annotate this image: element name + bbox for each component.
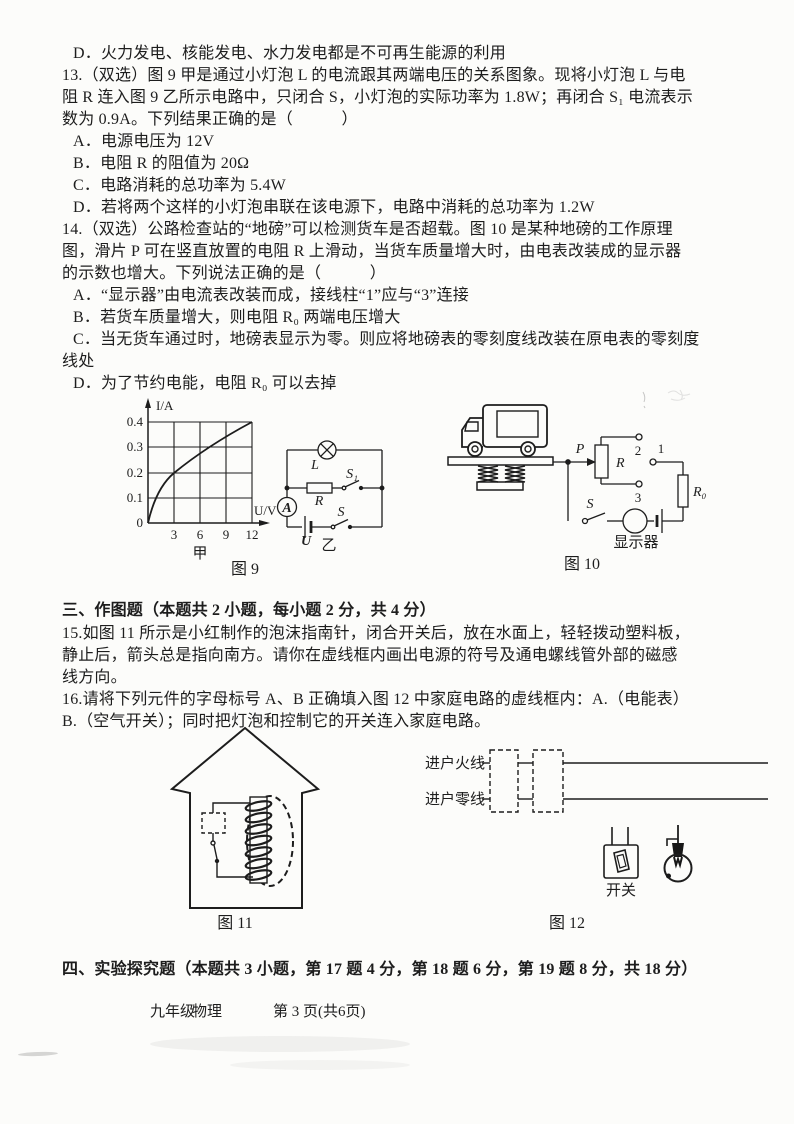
scan-smudge bbox=[150, 1036, 410, 1052]
q14-stem-1: 14.（双选）公路检查站的“地磅”可以检测货车是否超载。图 10 是某种地磅的工… bbox=[62, 220, 673, 240]
wall-switch-icon bbox=[604, 827, 638, 878]
figure-10-caption: 图 10 bbox=[564, 556, 600, 573]
switch-blade-icon bbox=[214, 845, 217, 859]
y-tick: 0.2 bbox=[127, 465, 143, 480]
switch1-label: S₁ bbox=[346, 467, 358, 482]
q13-stem-2: 阻 R 连入图 9 乙所示电路中，只闭合 S，小灯泡的实际功率为 1.8W；再闭… bbox=[62, 88, 693, 108]
figure-10: P R 2 1 3 R₀ S 显示器 图 10 bbox=[420, 385, 780, 585]
q14-stem-3: 的示数也增大。下列说法正确的是（ ） bbox=[62, 264, 386, 284]
figure-12-caption: 图 12 bbox=[549, 915, 585, 932]
resistor-label: R bbox=[615, 456, 625, 471]
switch-s-icon bbox=[334, 520, 348, 527]
terminal-2 bbox=[636, 434, 642, 440]
footer-grade: 九年级 bbox=[150, 1000, 195, 1021]
switch-label: S bbox=[338, 505, 345, 520]
switch-pivot bbox=[211, 841, 215, 845]
q15-stem-2: 静止后，箭头总是指向南方。请你在虚线框内画出电源的符号及通电螺线管外部的磁感 bbox=[62, 646, 678, 666]
wall-switch-label: 开关 bbox=[606, 882, 636, 899]
slide-resistor-icon bbox=[595, 445, 608, 478]
dashed-box-b bbox=[533, 750, 563, 812]
q13-stem-1: 13.（双选）图 9 甲是通过小灯泡 L 的电流跟其两端电压的关系图象。现将小灯… bbox=[62, 66, 686, 86]
footer-subject: 物理 bbox=[192, 1000, 222, 1021]
battery-icon bbox=[657, 509, 662, 533]
x-tick: 12 bbox=[246, 527, 259, 542]
q14-option-b: B．若货车质量增大，则电阻 R₀ 两端电压增大 bbox=[73, 308, 401, 328]
y-axis-arrow-icon bbox=[145, 398, 151, 408]
section-4-title: 四、实验探究题（本题共 3 小题，第 17 题 4 分，第 18 题 6 分，第… bbox=[62, 960, 697, 980]
x-tick: 3 bbox=[171, 527, 178, 542]
x-tick: 9 bbox=[223, 527, 230, 542]
switch-pivot bbox=[583, 519, 588, 524]
r0-resistor-icon bbox=[678, 475, 688, 507]
q14-stem-2: 图，滑片 P 可在竖直放置的电阻 R 上滑动，当货车质量增大时，由电表改装成的显… bbox=[62, 242, 681, 262]
q13-option-a: A．电源电压为 12V bbox=[73, 132, 214, 152]
weighbridge-circuit bbox=[553, 434, 688, 533]
ammeter-label: A bbox=[281, 501, 291, 516]
terminal-1 bbox=[650, 459, 656, 465]
scan-smudge bbox=[18, 1051, 58, 1056]
dashed-box-a bbox=[490, 750, 518, 812]
iu-graph bbox=[145, 398, 270, 526]
x-tick: 6 bbox=[197, 527, 204, 542]
q13-option-d: D．若将两个这样的小灯泡串联在该电源下，电路中消耗的总功率为 1.2W bbox=[73, 198, 595, 218]
q16-stem-1: 16.请将下列元件的字母标号 A、B 正确填入图 12 中家庭电路的虚线框内：A… bbox=[62, 690, 689, 710]
battery-label: U bbox=[301, 534, 312, 549]
q12-option-d: D．火力发电、核能发电、水力发电都是不可再生能源的利用 bbox=[73, 44, 506, 64]
q14-option-c2: 线处 bbox=[62, 352, 94, 372]
terminal-2-label: 2 bbox=[635, 443, 642, 458]
terminal-1-label: 1 bbox=[658, 441, 665, 456]
neutral-wire-label: 进户零线 bbox=[425, 791, 485, 808]
q15-stem-1: 15.如图 11 所示是小红制作的泡沫指南针，闭合开关后，放在水面上，轻轻拨动塑… bbox=[62, 624, 690, 644]
lamp-label: L bbox=[310, 458, 319, 473]
y-tick: 0.3 bbox=[127, 439, 143, 454]
y-tick: 0.4 bbox=[127, 414, 144, 429]
switch-blade-icon bbox=[587, 513, 605, 520]
resistor-icon bbox=[307, 483, 332, 493]
q14-option-d: D．为了节约电能，电阻 R₀ 可以去掉 bbox=[73, 374, 337, 394]
r0-label: R₀ bbox=[692, 485, 707, 500]
q14-option-c1: C．当无货车通过时，地磅表显示为零。则应将地磅表的零刻度线改装在原电表的零刻度 bbox=[73, 330, 699, 350]
power-source-box bbox=[202, 813, 225, 833]
pencil-smudge bbox=[643, 390, 690, 408]
footer-page-info: 第 3 页(共6页) bbox=[273, 1000, 366, 1021]
figure-11: 图 11 bbox=[150, 722, 360, 937]
platform bbox=[448, 457, 553, 465]
q13-option-b: B．电阻 R 的阻值为 20Ω bbox=[73, 154, 249, 174]
terminal-3 bbox=[636, 481, 642, 487]
figure-11-caption: 图 11 bbox=[217, 915, 252, 932]
mains-wires bbox=[482, 750, 768, 812]
graph-jia-label: 甲 bbox=[192, 546, 207, 562]
spring-base bbox=[477, 482, 523, 490]
circuit-yi bbox=[278, 441, 384, 538]
bulb-icon bbox=[665, 825, 692, 882]
resistor-label: R bbox=[314, 494, 324, 509]
terminal-3-label: 3 bbox=[635, 490, 642, 505]
circuit-yi-label: 乙 bbox=[321, 538, 336, 554]
x-axis-arrow-icon bbox=[259, 520, 270, 526]
display-meter-icon bbox=[623, 509, 647, 533]
figure-12: 进户火线 进户零线 开关 图 12 bbox=[410, 735, 780, 935]
arrow-plate-outline bbox=[172, 728, 318, 908]
y-tick: 0.1 bbox=[127, 490, 143, 505]
display-label: 显示器 bbox=[613, 535, 658, 551]
figure-9-caption: 图 9 bbox=[231, 561, 259, 578]
wiper-label: P bbox=[575, 442, 585, 457]
switch-label: S bbox=[587, 497, 594, 512]
truck-icon bbox=[462, 405, 547, 456]
spring-icon bbox=[478, 466, 525, 482]
q13-option-c: C．电路消耗的总功率为 5.4W bbox=[73, 176, 286, 196]
scan-smudge bbox=[230, 1060, 410, 1070]
figure-9: I/A U/V 0.4 0.3 0.2 0.1 0 3 6 9 12 甲 bbox=[95, 393, 425, 588]
q14-option-a: A．“显示器”由电流表改装而成，接线柱“1”应与“3”连接 bbox=[73, 286, 469, 306]
y-axis-label: I/A bbox=[156, 398, 174, 413]
y-tick: 0 bbox=[137, 515, 144, 530]
section-3-title: 三、作图题（本题共 2 小题，每小题 2 分，共 4 分） bbox=[62, 601, 436, 621]
x-axis-label: U/V bbox=[254, 503, 277, 518]
exam-page: D．火力发电、核能发电、水力发电都是不可再生能源的利用 13.（双选）图 9 甲… bbox=[0, 0, 794, 1124]
live-wire-label: 进户火线 bbox=[425, 755, 485, 772]
q15-stem-3: 线方向。 bbox=[62, 668, 127, 688]
q13-stem-3: 数为 0.9A。下列结果正确的是（ ） bbox=[62, 110, 358, 130]
